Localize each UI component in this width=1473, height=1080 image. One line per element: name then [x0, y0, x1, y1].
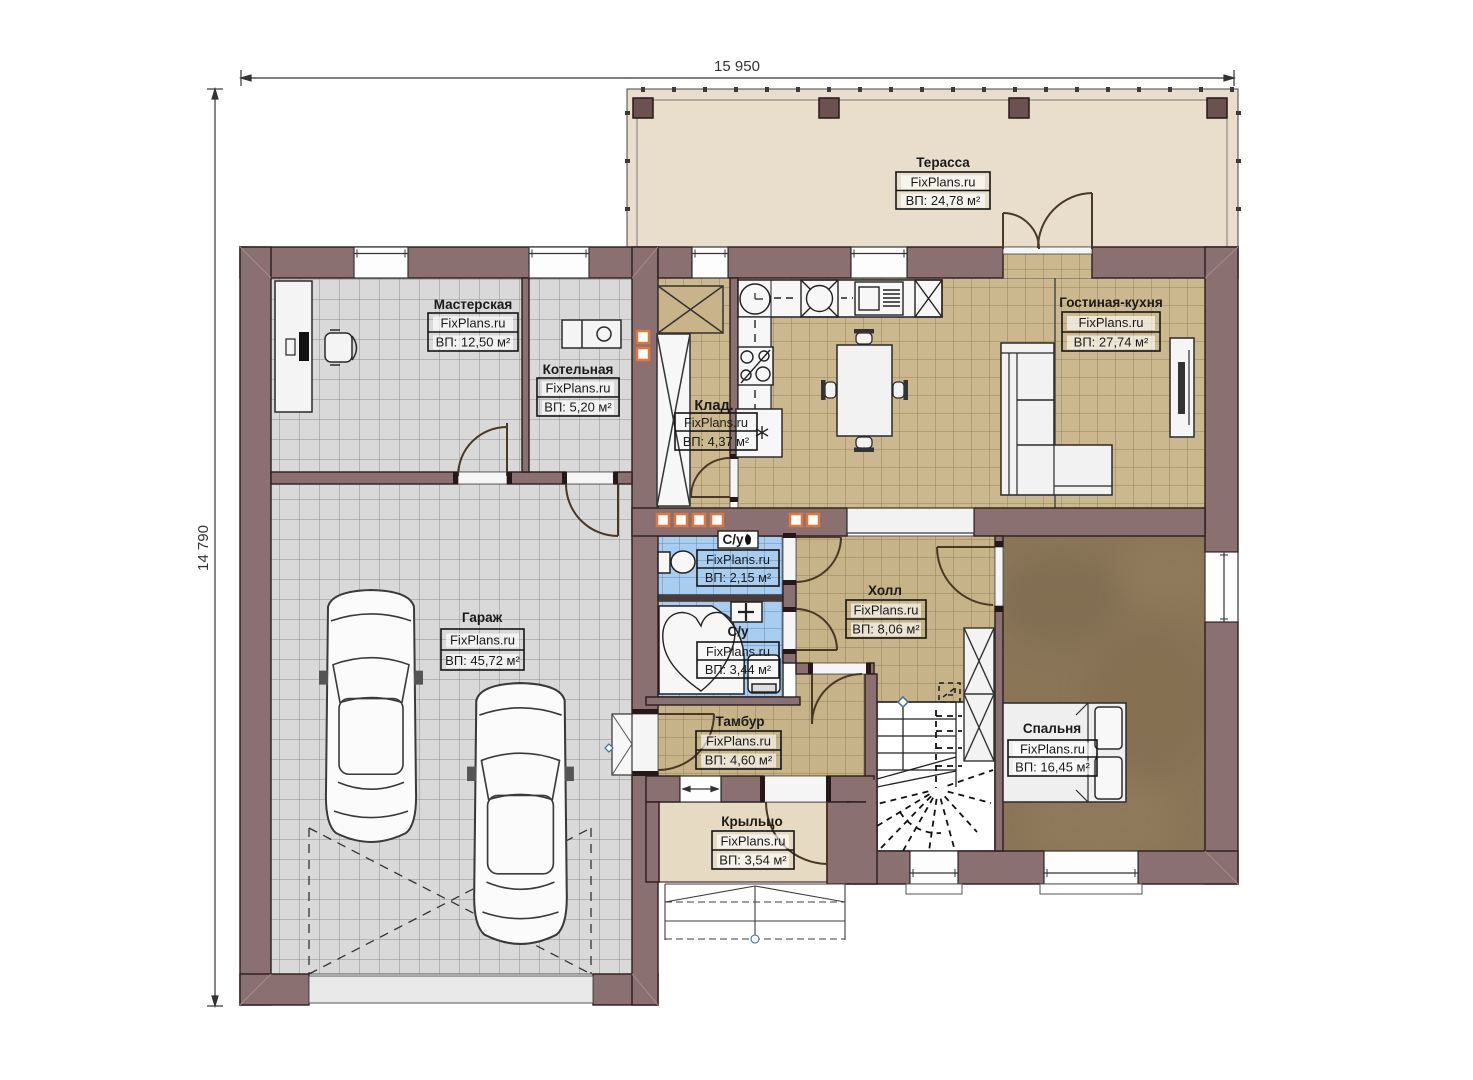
svg-text:Клад.: Клад.: [694, 398, 733, 414]
svg-text:ВП: 4,60 м²: ВП: 4,60 м²: [705, 753, 773, 768]
svg-text:Спальня: Спальня: [1023, 721, 1081, 736]
svg-text:FixPlans.ru: FixPlans.ru: [450, 633, 515, 648]
svg-text:Терасса: Терасса: [916, 155, 970, 170]
svg-text:ВП: 5,20 м²: ВП: 5,20 м²: [544, 400, 612, 415]
svg-text:Котельная: Котельная: [543, 362, 614, 377]
svg-text:ВП: 8,06 м²: ВП: 8,06 м²: [852, 622, 920, 637]
svg-text:ВП: 16,45 м²: ВП: 16,45 м²: [1015, 760, 1090, 775]
svg-text:FixPlans.ru: FixPlans.ru: [440, 316, 505, 331]
svg-text:ВП: 24,78 м²: ВП: 24,78 м²: [906, 193, 981, 208]
svg-text:Холл: Холл: [868, 583, 902, 598]
svg-text:Тамбур: Тамбур: [716, 714, 765, 729]
svg-text:FixPlans.ru: FixPlans.ru: [853, 603, 918, 618]
svg-text:FixPlans.ru: FixPlans.ru: [1078, 315, 1143, 330]
svg-text:14 790: 14 790: [195, 525, 212, 571]
svg-text:ВП: 3,44 м²: ВП: 3,44 м²: [705, 662, 772, 677]
svg-text:ВП: 3,54 м²: ВП: 3,54 м²: [719, 853, 787, 868]
svg-text:ВП: 27,74 м²: ВП: 27,74 м²: [1074, 335, 1149, 350]
svg-text:Мастерская: Мастерская: [434, 297, 512, 312]
svg-text:FixPlans.ru: FixPlans.ru: [706, 552, 770, 567]
svg-text:FixPlans.ru: FixPlans.ru: [684, 415, 748, 430]
svg-text:ВП: 2,15 м²: ВП: 2,15 м²: [705, 570, 772, 585]
svg-text:FixPlans.ru: FixPlans.ru: [910, 174, 975, 189]
svg-text:С/у: С/у: [722, 532, 744, 547]
svg-text:FixPlans.ru: FixPlans.ru: [706, 644, 770, 659]
svg-text:С/у: С/у: [727, 624, 749, 639]
svg-text:FixPlans.ru: FixPlans.ru: [545, 381, 610, 396]
svg-text:ВП: 4,37 м²: ВП: 4,37 м²: [683, 434, 750, 449]
svg-text:Гостиная-кухня: Гостиная-кухня: [1059, 295, 1162, 310]
svg-text:Крыльцо: Крыльцо: [721, 814, 782, 829]
svg-text:FixPlans.ru: FixPlans.ru: [1020, 742, 1085, 757]
svg-text:ВП: 45,72 м²: ВП: 45,72 м²: [445, 653, 520, 668]
svg-text:FixPlans.ru: FixPlans.ru: [706, 734, 771, 749]
svg-text:FixPlans.ru: FixPlans.ru: [720, 834, 785, 849]
svg-text:ВП: 12,50 м²: ВП: 12,50 м²: [436, 335, 511, 350]
svg-text:15 950: 15 950: [714, 58, 760, 75]
svg-text:Гараж: Гараж: [462, 610, 503, 625]
